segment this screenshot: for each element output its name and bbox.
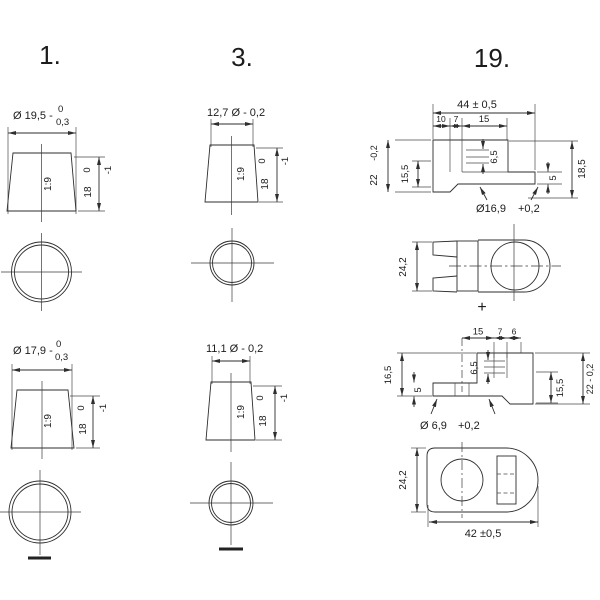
type19-section: 19. 44 ± 0,5 10 7 15 6,5 [369,43,595,540]
blade-thickness-label: 5 [413,387,424,392]
height-tol-upper: 0 [257,158,268,163]
height-label: 18 [258,415,269,427]
tolerance-lower: 0,3 [55,352,68,363]
seg-c-label: 6 [512,327,517,337]
plus-polarity-label: + [477,299,486,316]
height-tol-lower: -1 [280,157,291,165]
type19-plan-view-upper: 24,2 + [398,224,561,316]
height-label: 18 [83,186,94,198]
terminal-body-outline [433,353,533,404]
seg-c-label: 15 [479,114,490,125]
height-tol-lower: -1 [103,166,114,174]
section-label: 3. [231,42,253,72]
type3-post-upper-top-view [191,228,274,302]
terminal-body-outline [433,140,535,192]
body-height-label: 22 [369,174,380,186]
type19-side-view-upper: 44 ± 0,5 10 7 15 6,5 -0 [369,99,588,215]
screw-detail [497,456,516,504]
tolerance-lower: 0,3 [56,117,69,128]
body-height-tol: -0,2 [369,145,379,161]
body-height-label: 22 - 0,2 [585,364,595,395]
plan-height-label: 24,2 [398,257,409,277]
height-tol-upper: 0 [82,167,93,172]
type1-post-lower-top-view [0,470,81,558]
post-outline [206,382,255,440]
type1-post-upper-side-view: Ø 19,5 - 0 0,3 1:9 0 18 -1 [7,104,114,222]
tolerance-upper: 0 [56,339,61,350]
post-diameter-label: Ø 17,9 - [13,345,53,357]
height-label: 18 [260,178,271,190]
slot-height-label: 6,5 [489,150,500,163]
left-height-label: 16,5 [383,366,394,385]
tolerance-upper: 0 [58,104,63,115]
inner-height-label: 15,5 [400,165,411,184]
right-height-label: 18,5 [577,159,588,179]
technical-drawing: 1. Ø 19,5 - 0 0,3 1:9 0 18 -1 [0,0,600,600]
seg-b-label: 7 [454,114,459,124]
hole-tolerance-label: +0,2 [518,203,540,215]
clamp-jaws-outline [433,241,457,292]
height-tol-lower: -1 [279,394,290,402]
seg-b-label: 7 [498,327,503,337]
post-diameter-label: 11,1 Ø - 0,2 [206,343,263,355]
terminal-drawing-sheet: 1. Ø 19,5 - 0 0,3 1:9 0 18 -1 [0,0,600,600]
inner-height-label: 15,5 [555,379,566,398]
hole-diameter-label: Ø 6,9 [420,420,447,432]
type3-post-lower-side-view: 11,1 Ø - 0,2 1:9 0 18 -1 [206,343,290,452]
hole-diameter-label: Ø16,9 [476,203,506,215]
type3-section: 3. 12,7 Ø - 0,2 1:9 0 18 -1 11,1 Ø - [190,42,291,549]
base-plate-outline [427,448,538,512]
taper-label: 1:9 [43,177,54,191]
taper-label: 1:9 [43,414,54,428]
type1-section: 1. Ø 19,5 - 0 0,3 1:9 0 18 -1 [0,40,114,558]
type19-side-view-lower: 15 7 6 6,5 16,5 5 [383,327,595,433]
height-tol-upper: 0 [76,405,87,410]
type3-post-upper-side-view: 12,7 Ø - 0,2 1:9 0 18 -1 [205,107,291,215]
blade-thickness-label: 5 [548,175,559,180]
section-label: 1. [39,40,61,70]
post-diameter-label: Ø 19,5 - [13,110,53,122]
overall-width-label: 44 ± 0,5 [457,99,497,111]
post-diameter-label: 12,7 Ø - 0,2 [207,107,265,119]
taper-label: 1:9 [236,167,247,181]
plate-width-label: 42 ±0,5 [465,528,502,540]
type1-post-upper-top-view [1,233,82,311]
type19-plan-view-lower: 24,2 42 ±0,5 [398,442,538,540]
type1-post-lower-side-view: Ø 17,9 - 0 0,3 1:9 0 18 -1 [11,339,109,459]
seg-a-label: 15 [473,327,484,338]
height-tol-upper: 0 [255,395,266,400]
section-label: 19. [474,43,510,73]
plate-height-label: 24,2 [398,470,409,490]
hole-tolerance-label: +0,2 [458,420,480,432]
height-tol-lower: -1 [98,404,109,412]
slot-height-label: 6,5 [469,361,480,374]
taper-label: 1:9 [236,405,247,419]
height-label: 18 [78,423,89,435]
type3-post-lower-top-view [190,462,273,549]
seg-a-label: 10 [436,114,446,124]
